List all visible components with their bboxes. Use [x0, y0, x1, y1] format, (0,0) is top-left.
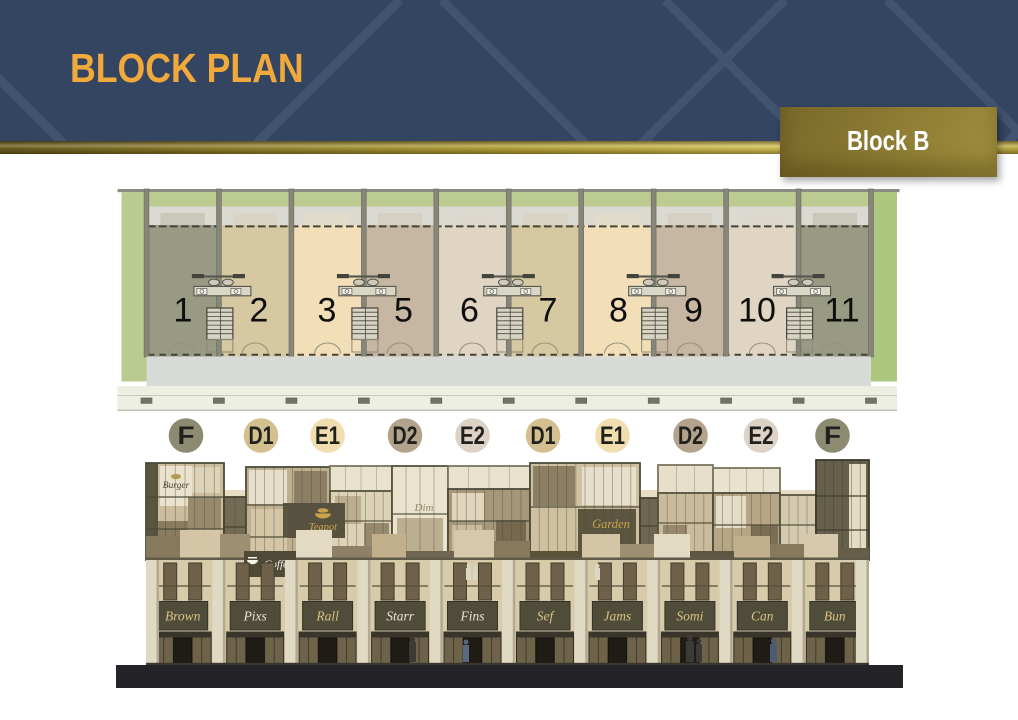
svg-text:E1: E1 [315, 422, 340, 450]
svg-text:Fins: Fins [459, 609, 484, 624]
svg-text:D1: D1 [249, 422, 274, 450]
svg-text:Dim: Dim [414, 502, 434, 514]
svg-text:D2: D2 [393, 422, 418, 450]
svg-text:Burger: Burger [163, 481, 190, 491]
svg-text:11: 11 [824, 292, 859, 330]
svg-text:D2: D2 [678, 422, 703, 450]
svg-text:D1: D1 [531, 422, 556, 450]
svg-text:5: 5 [394, 292, 413, 330]
svg-text:3: 3 [318, 292, 337, 330]
svg-text:Bun: Bun [824, 609, 846, 624]
svg-text:6: 6 [460, 292, 479, 330]
svg-text:1: 1 [174, 292, 193, 330]
svg-text:10: 10 [738, 292, 776, 330]
svg-text:Can: Can [751, 609, 774, 624]
svg-text:E2: E2 [460, 422, 485, 450]
svg-text:7: 7 [539, 292, 558, 330]
svg-text:Starr: Starr [386, 609, 415, 624]
svg-text:E2: E2 [749, 422, 774, 450]
svg-text:2: 2 [250, 292, 269, 330]
svg-text:9: 9 [684, 292, 703, 330]
svg-text:8: 8 [609, 292, 628, 330]
svg-text:F: F [824, 422, 841, 450]
svg-text:Garden: Garden [592, 517, 630, 531]
svg-text:F: F [178, 422, 195, 450]
svg-text:Brown: Brown [165, 609, 201, 624]
svg-text:E1: E1 [600, 422, 625, 450]
svg-text:Rall: Rall [315, 609, 339, 624]
svg-text:Somi: Somi [676, 609, 703, 624]
svg-text:Pixs: Pixs [243, 609, 267, 624]
svg-text:Sef: Sef [537, 609, 556, 624]
svg-text:Jams: Jams [604, 609, 632, 624]
